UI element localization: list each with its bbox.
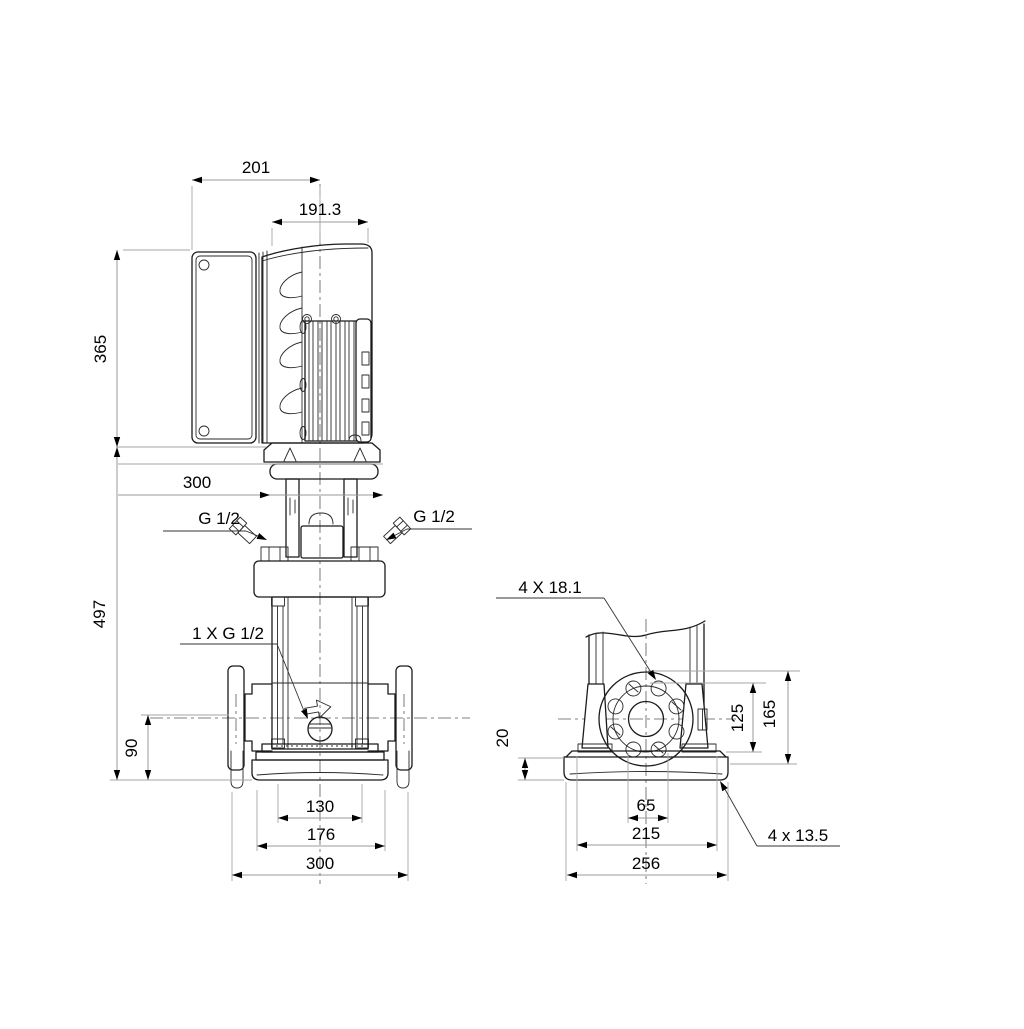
dim-flange-center-to-base: 125 [728, 704, 747, 732]
centerlines [150, 184, 736, 884]
label-foundation-holes: 4 x 13.5 [768, 826, 829, 845]
dim-pump-height: 497 [90, 600, 109, 628]
dim-base-inner-width: 130 [306, 797, 334, 816]
dim-port-center-height: 90 [122, 739, 141, 758]
dim-base-plate-thickness: 20 [493, 729, 512, 748]
dim-motor-flange-width: 300 [183, 473, 211, 492]
vent-plug-right-icon [382, 517, 411, 546]
heatsink-fins [309, 321, 354, 441]
dim-base-plate-width: 176 [307, 825, 335, 844]
dim-base-overall-width: 300 [306, 854, 334, 873]
pump-dimensional-drawing: 201 191.3 365 497 300 G 1/2 G 1/2 1 X G … [0, 0, 1024, 1024]
dim-motor-length: 191.3 [299, 200, 342, 219]
dim-motor-height: 365 [91, 335, 110, 363]
dim-base-depth: 256 [632, 854, 660, 873]
label-drain-plug: 1 X G 1/2 [192, 624, 264, 643]
motor [192, 244, 372, 443]
pump-head-flange [254, 561, 385, 597]
motor-flange [264, 443, 380, 479]
dim-control-box-width: 201 [242, 158, 270, 177]
label-vent-plug-left: G 1/2 [198, 509, 240, 528]
label-vent-plug-right: G 1/2 [413, 507, 455, 526]
column-break [582, 621, 708, 748]
dimension-labels: 201 191.3 365 497 300 G 1/2 G 1/2 1 X G … [90, 158, 828, 873]
dim-hole-slot-spacing: 65 [637, 796, 656, 815]
dim-bolt-hole-spacing: 215 [632, 824, 660, 843]
leader-lines [163, 529, 840, 846]
label-flange-holes: 4 X 18.1 [518, 578, 581, 597]
drawing-canvas: 201 191.3 365 497 300 G 1/2 G 1/2 1 X G … [0, 0, 1024, 1024]
extension-lines [110, 186, 800, 881]
dim-flange-top-to-base: 165 [760, 700, 779, 728]
drain-plug-icon [304, 698, 333, 741]
